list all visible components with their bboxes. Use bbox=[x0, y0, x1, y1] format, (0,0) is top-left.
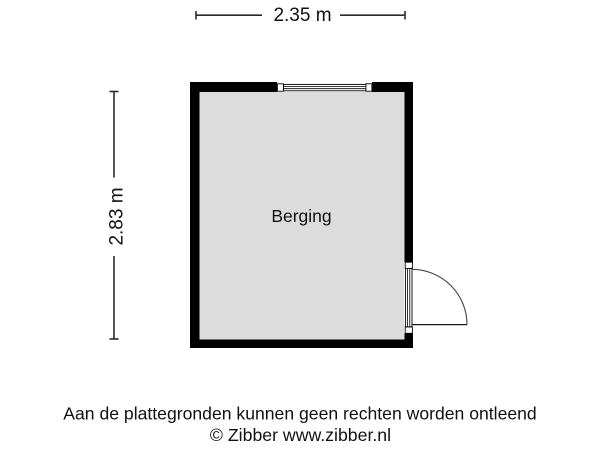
svg-text:2.83 m: 2.83 m bbox=[106, 187, 127, 245]
svg-text:Aan de plattegronden kunnen ge: Aan de plattegronden kunnen geen rechten… bbox=[63, 404, 536, 424]
svg-text:Berging: Berging bbox=[271, 206, 331, 226]
svg-text:2.35 m: 2.35 m bbox=[273, 5, 331, 26]
svg-text:© Zibber www.zibber.nl: © Zibber www.zibber.nl bbox=[210, 425, 391, 445]
